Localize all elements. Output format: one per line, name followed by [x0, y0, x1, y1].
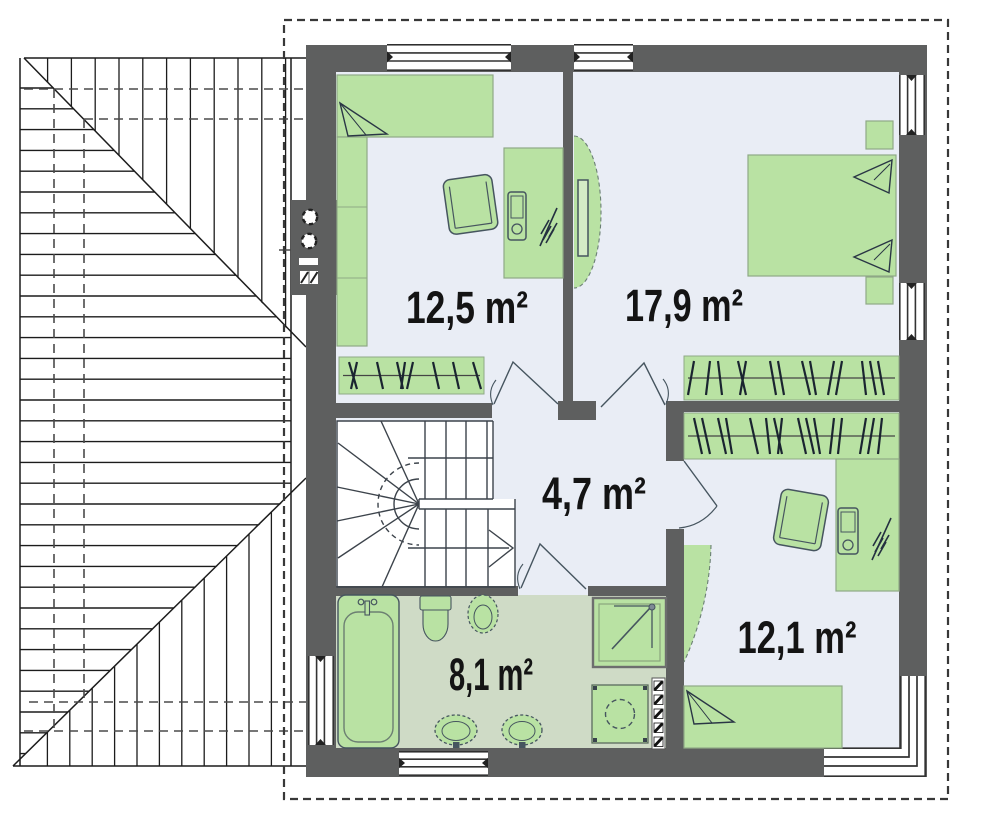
- svg-text:12,1 m²: 12,1 m²: [738, 612, 857, 663]
- svg-text:17,9 m²: 17,9 m²: [625, 280, 743, 331]
- svg-text:4,7 m²: 4,7 m²: [542, 468, 646, 519]
- svg-text:12,5 m²: 12,5 m²: [406, 282, 528, 333]
- svg-text:8,1 m²: 8,1 m²: [449, 649, 533, 700]
